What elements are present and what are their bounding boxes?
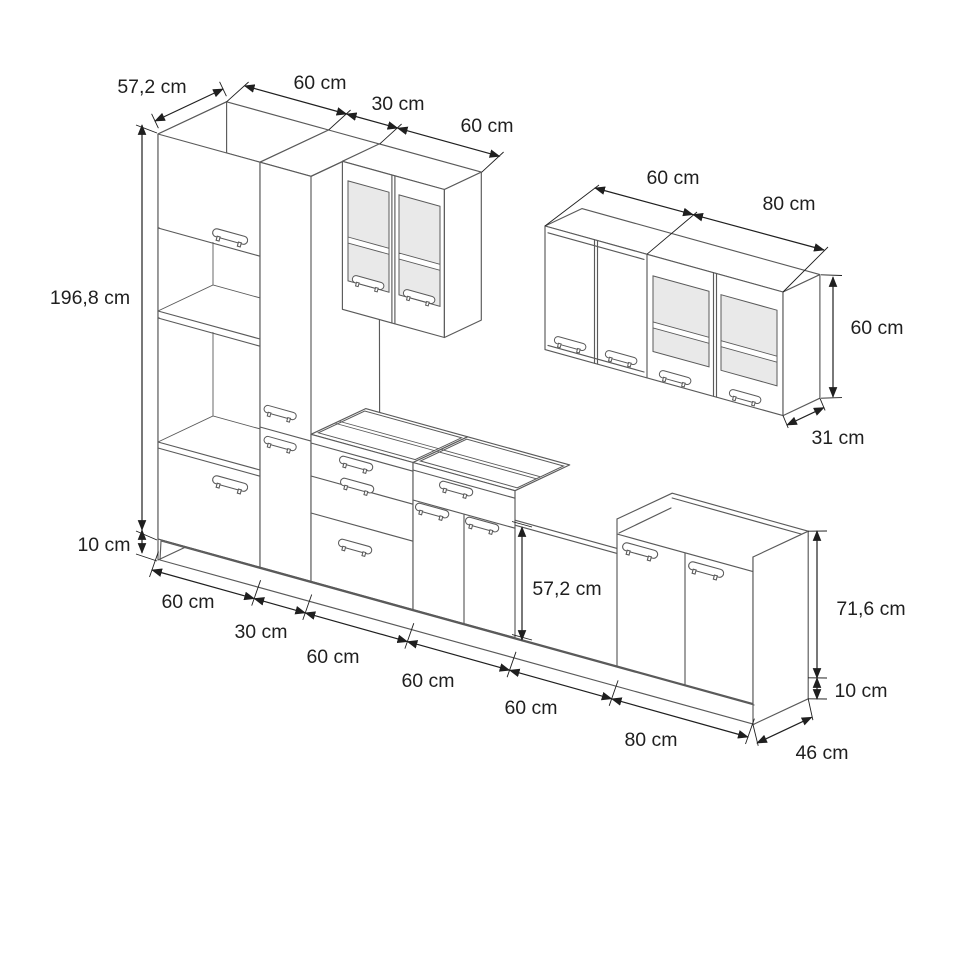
dim-run-w5-label: 60 cm	[504, 697, 557, 719]
dim-wall-right-w2-label: 80 cm	[762, 193, 815, 215]
dim-tall-height-label: 196,8 cm	[50, 287, 130, 309]
appliance-niche	[515, 520, 617, 553]
dim-tall-w1-label: 60 cm	[293, 72, 346, 94]
wall-glass-cabinet-left	[342, 144, 481, 412]
dim-tall-w2-label: 30 cm	[371, 93, 424, 115]
dim-wall-right-w1-label: 60 cm	[646, 167, 699, 189]
door-handle	[687, 561, 725, 582]
dim-base-d-label: 46 cm	[795, 742, 848, 764]
dim-tall-depth-label: 57,2 cm	[117, 76, 186, 98]
base-cabinet-doors	[413, 437, 570, 638]
dim-niche-h-label: 57,2 cm	[532, 578, 601, 600]
kitchen-dimension-diagram: 57,2 cm 60 cm 30 cm 60 cm 196,8 cm 10 cm…	[0, 0, 970, 971]
dim-wall-left-w-label: 60 cm	[460, 115, 513, 137]
dimension-tall-height	[136, 125, 157, 561]
dimension-wall-height-right	[821, 275, 842, 398]
dim-run-w2-label: 30 cm	[234, 621, 287, 643]
dim-run-w1-label: 60 cm	[161, 591, 214, 613]
dimension-base-height	[808, 531, 827, 699]
wall-cabinet-group-right	[545, 209, 820, 416]
dim-base-h-label: 71,6 cm	[836, 598, 905, 620]
dim-wall-right-h-label: 60 cm	[850, 317, 903, 339]
dim-run-w6-label: 80 cm	[624, 729, 677, 751]
dim-wall-right-d-label: 31 cm	[811, 427, 864, 449]
dim-plinth-left-label: 10 cm	[77, 534, 130, 556]
sink-cabinet	[617, 493, 808, 724]
dim-run-w4-label: 60 cm	[401, 670, 454, 692]
dim-run-w3-label: 60 cm	[306, 646, 359, 668]
dim-plinth-right-label: 10 cm	[834, 680, 887, 702]
cabinet-line-drawing: 57,2 cm 60 cm 30 cm 60 cm 196,8 cm 10 cm…	[0, 0, 970, 971]
door-handle	[621, 542, 659, 563]
